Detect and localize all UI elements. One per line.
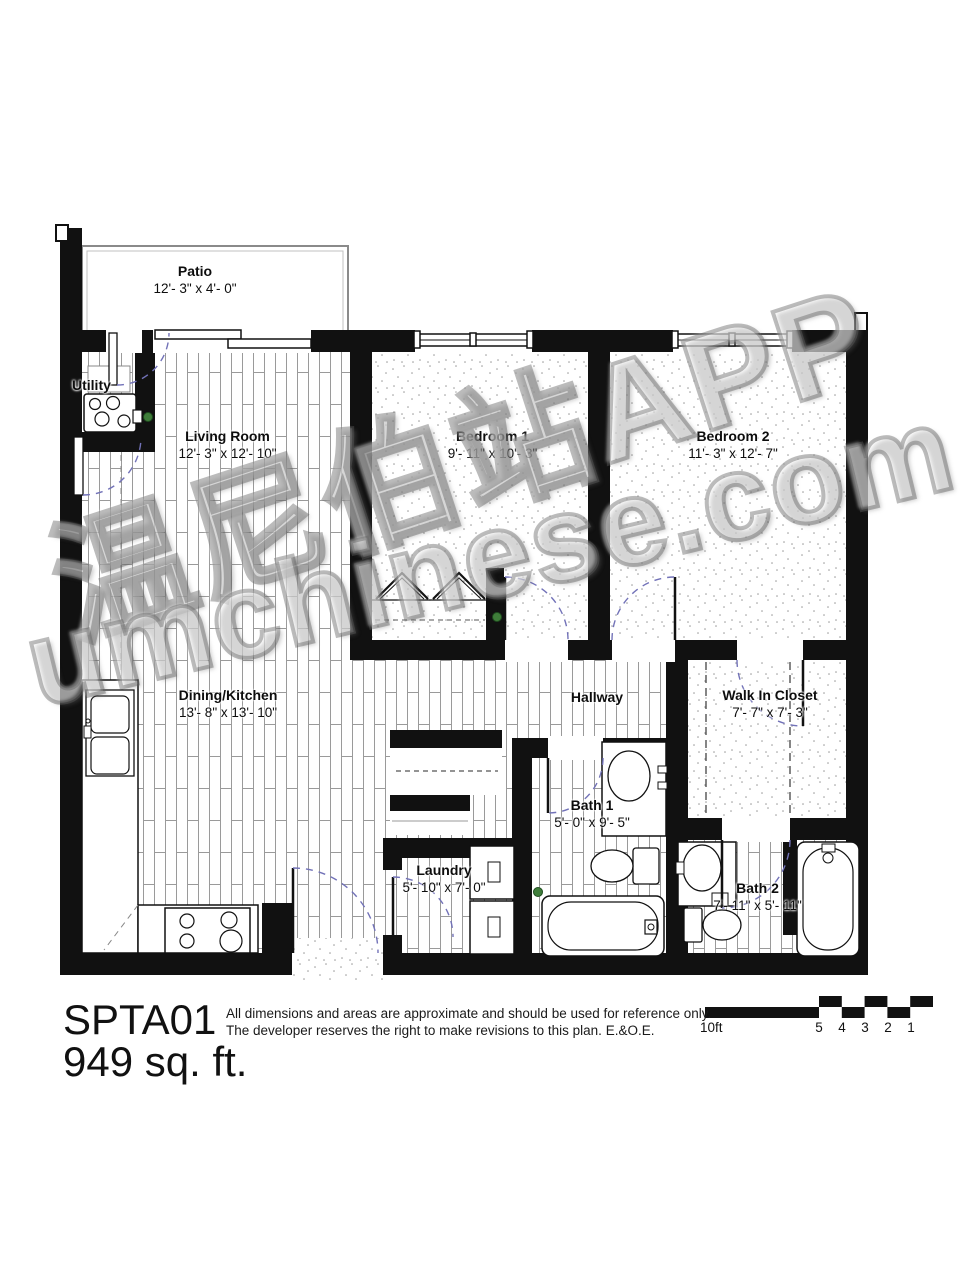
floorplan-page: Patio 12'- 3" x 4'- 0" Utility Living Ro… — [0, 0, 980, 1269]
column-marker — [56, 225, 68, 241]
scale-tick-5: 5 — [812, 1020, 826, 1035]
disclaimer-line-1: All dimensions and areas are approximate… — [226, 1005, 711, 1022]
bedroom2-window — [672, 331, 793, 348]
scale-bar — [705, 996, 933, 1018]
entry-landing — [292, 938, 383, 983]
plan-code: SPTA01 — [63, 998, 216, 1042]
patio-door-panel — [155, 330, 241, 339]
scale-tick-1: 1 — [904, 1020, 918, 1035]
room-label-hallway: Hallway — [547, 689, 647, 706]
bath1-toilet — [591, 848, 659, 884]
room-label-bath-1: Bath 1 5'- 0" x 9'- 5" — [530, 797, 654, 831]
plan-area: 949 sq. ft. — [63, 1040, 247, 1084]
disclaimer: All dimensions and areas are approximate… — [226, 1005, 711, 1039]
bedroom1-window — [414, 331, 533, 348]
room-label-utility: Utility — [72, 377, 152, 394]
room-label-living-room: Living Room 12'- 3" x 12'- 10" — [130, 428, 325, 462]
room-label-bedroom-2: Bedroom 2 11'- 3" x 12'- 7" — [635, 428, 831, 462]
room-label-bedroom-1: Bedroom 1 9'- 11" x 10'- 3" — [395, 428, 590, 462]
patio-door-panel — [228, 339, 311, 348]
scale-unit-label: 10ft — [700, 1020, 723, 1035]
room-label-laundry: Laundry 5'- 10" x 7'- 0" — [384, 862, 504, 896]
stove — [165, 908, 250, 953]
scale-tick-3: 3 — [858, 1020, 872, 1035]
scale-tick-2: 2 — [881, 1020, 895, 1035]
room-label-walk-in-closet: Walk In Closet 7'- 7" x 7'- 3" — [672, 687, 868, 721]
column-marker — [855, 313, 867, 331]
disclaimer-line-2: The developer reserves the right to make… — [226, 1022, 711, 1039]
side-door-leaf — [74, 437, 83, 495]
bath1-tub — [542, 896, 664, 956]
scale-tick-4: 4 — [835, 1020, 849, 1035]
room-label-dining-kitchen: Dining/Kitchen 13'- 8" x 13'- 10" — [130, 687, 326, 721]
kitchen-sink — [84, 690, 134, 776]
room-label-bath-2: Bath 2 7'- 11" x 5'- 11" — [680, 880, 835, 914]
room-label-patio: Patio 12'- 3" x 4'- 0" — [100, 263, 290, 297]
